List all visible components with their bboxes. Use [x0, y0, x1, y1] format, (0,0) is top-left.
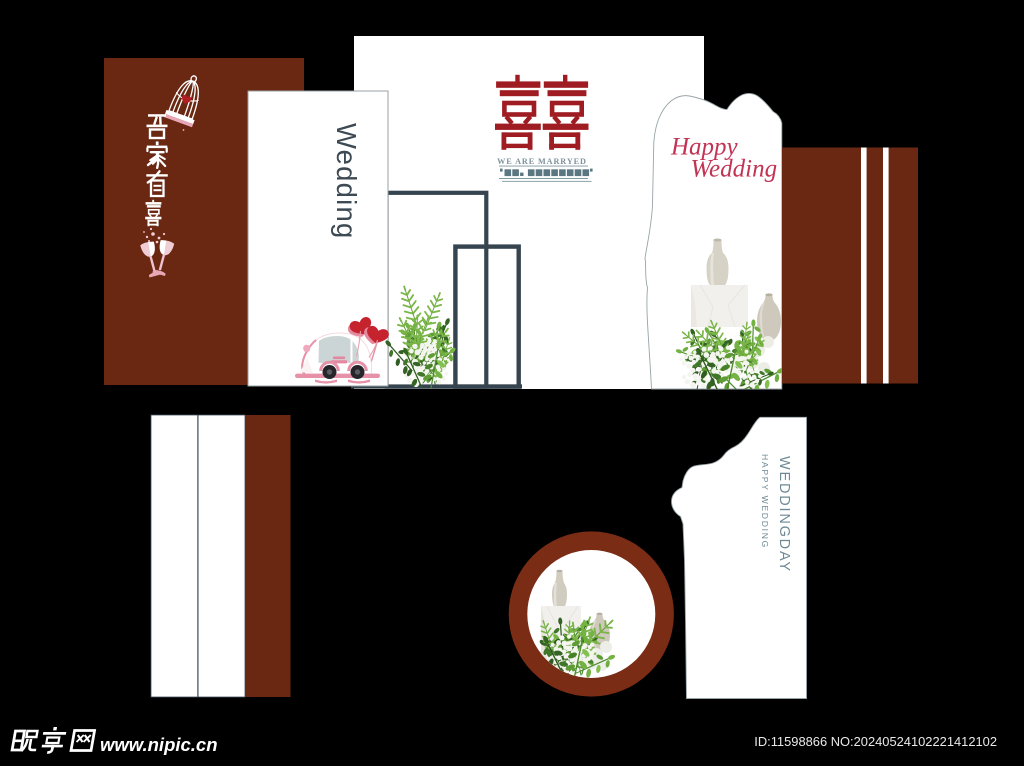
svg-text:ID:11598866 NO:202405241022214: ID:11598866 NO:20240524102221412102 — [754, 734, 997, 749]
svg-text:HAPPY WEDDING: HAPPY WEDDING — [760, 454, 770, 549]
svg-text:WEDDINGDAY: WEDDINGDAY — [776, 456, 792, 573]
svg-text:Wedding: Wedding — [691, 156, 778, 183]
svg-text:www.nipic.cn: www.nipic.cn — [100, 734, 218, 755]
svg-text:WE ARE MARRYED: WE ARE MARRYED — [497, 157, 587, 166]
svg-text:Wedding: Wedding — [331, 123, 362, 239]
